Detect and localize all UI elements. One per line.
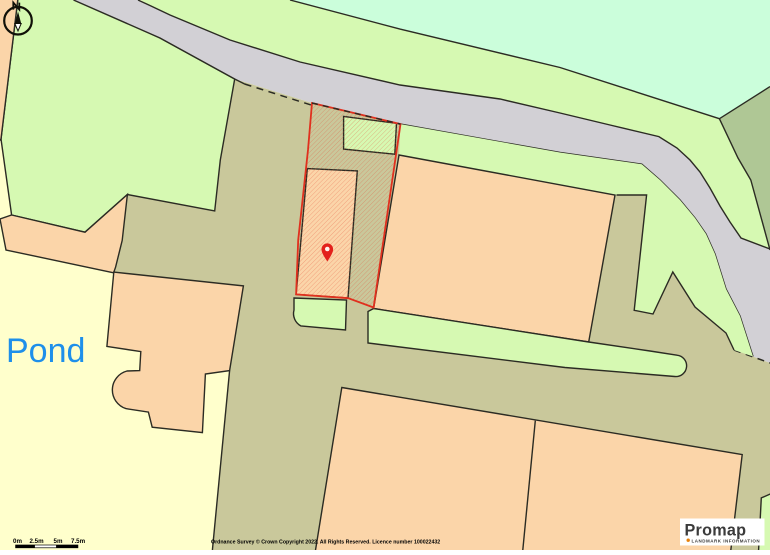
- svg-text:Promap: Promap: [685, 522, 747, 540]
- svg-text:7.5m: 7.5m: [71, 538, 86, 545]
- svg-text:LANDMARK INFORMATION: LANDMARK INFORMATION: [692, 538, 761, 543]
- svg-text:5m: 5m: [54, 538, 63, 545]
- svg-text:2.5m: 2.5m: [30, 538, 45, 545]
- svg-text:Ordnance Survey © Crown Copyri: Ordnance Survey © Crown Copyright 2022. …: [211, 539, 440, 546]
- svg-text:0m: 0m: [13, 538, 22, 545]
- svg-text:Pond: Pond: [6, 332, 85, 370]
